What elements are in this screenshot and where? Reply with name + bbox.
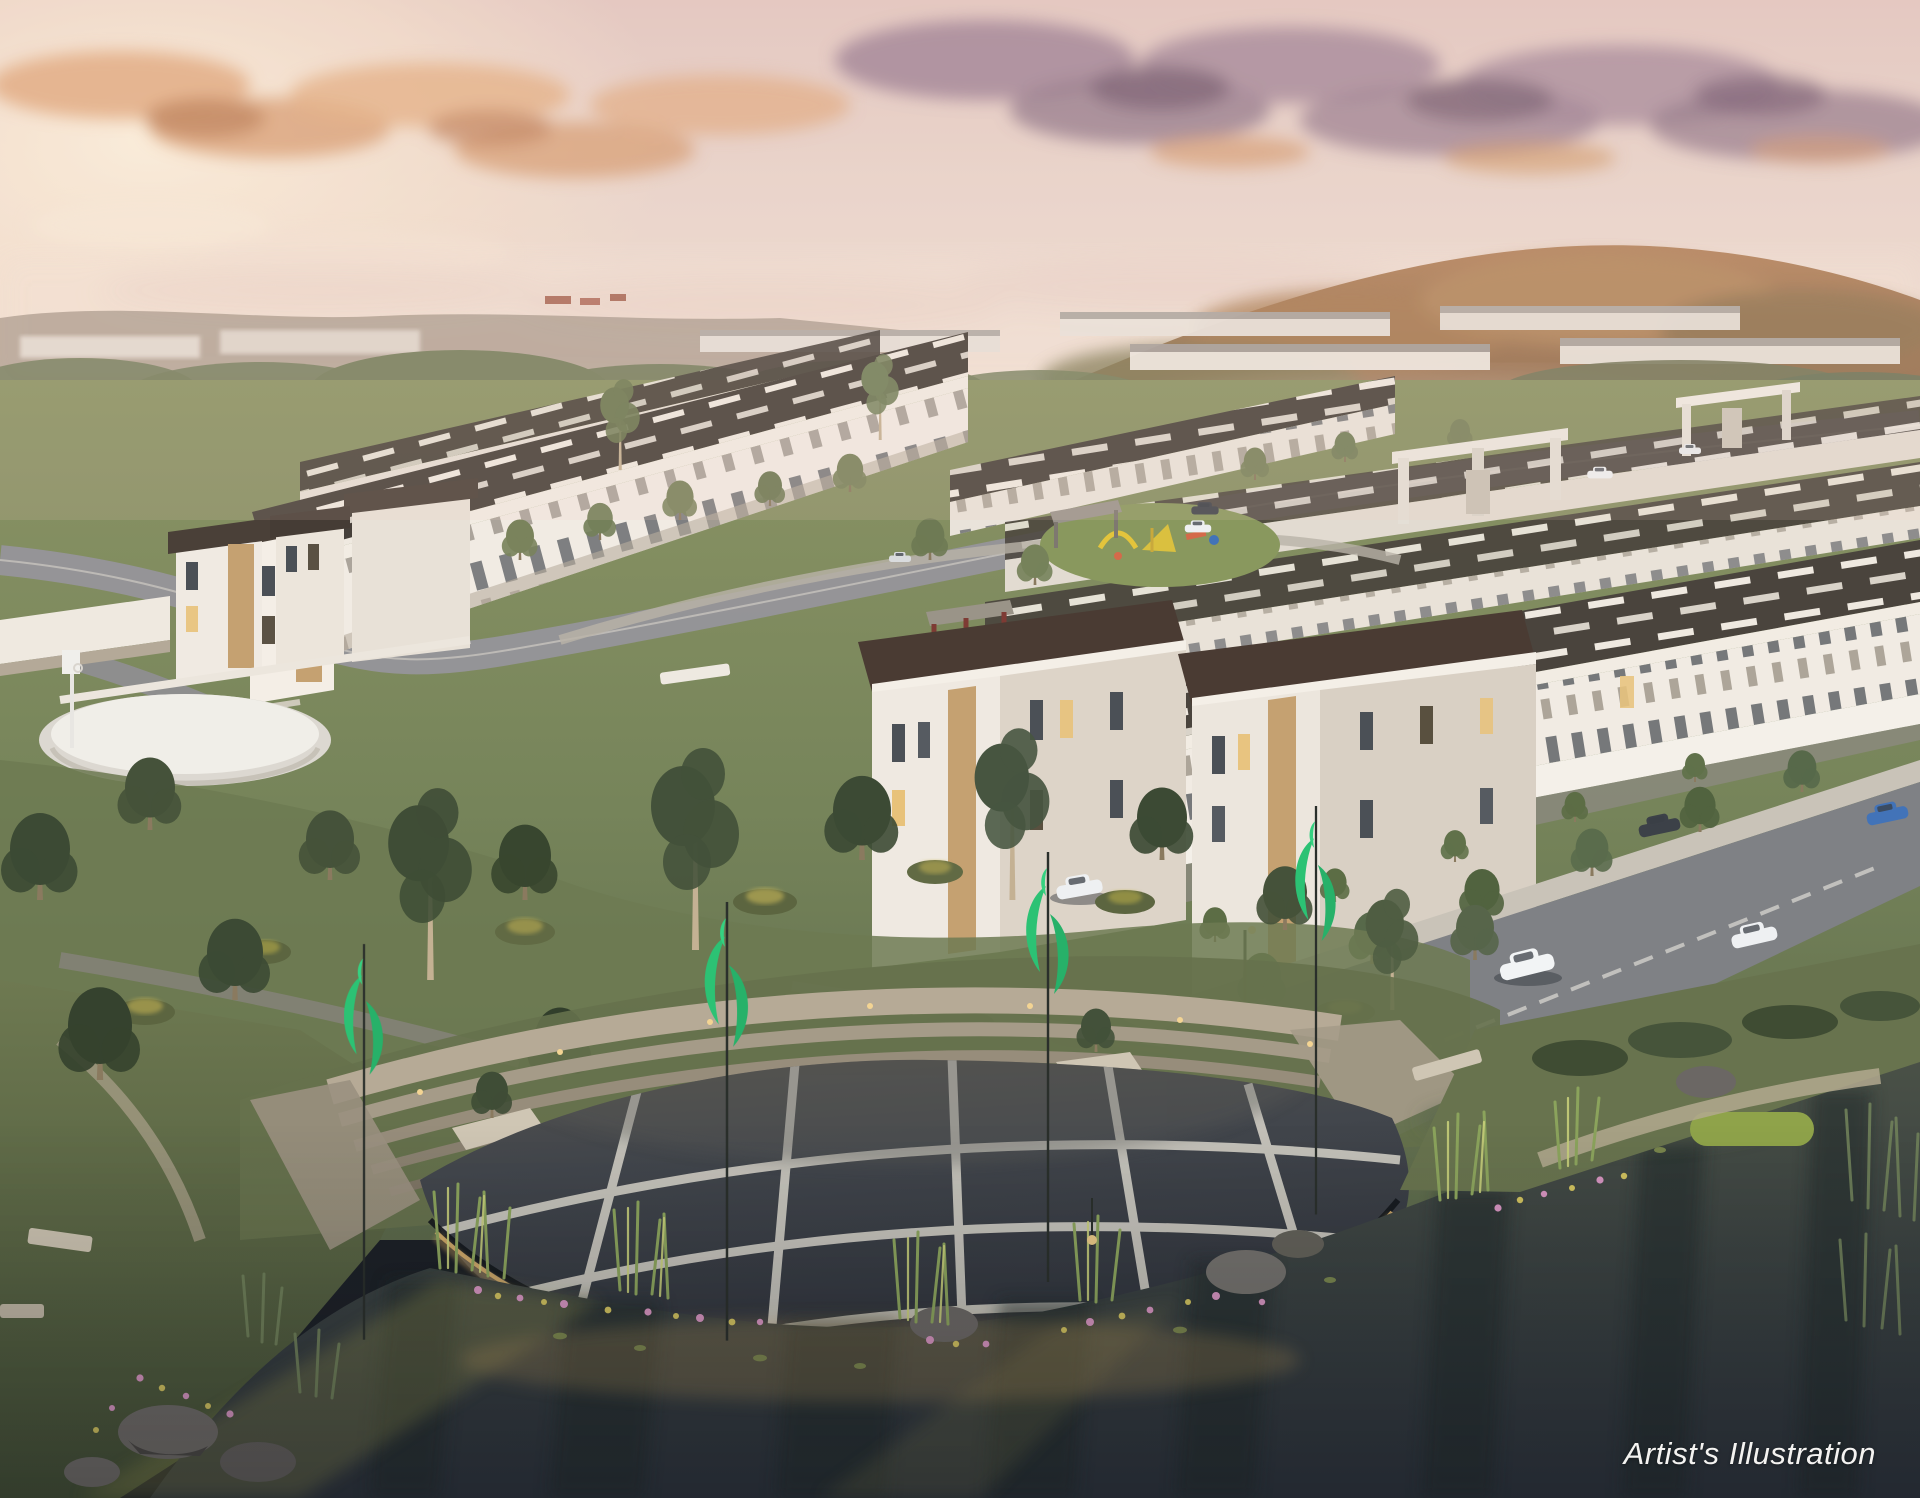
vignette-overlay [0,0,1920,1498]
aerial-render-illustration [0,0,1920,1498]
caption-artists-illustration: Artist's Illustration [1624,1436,1876,1472]
render-page: Artist's Illustration [0,0,1920,1498]
